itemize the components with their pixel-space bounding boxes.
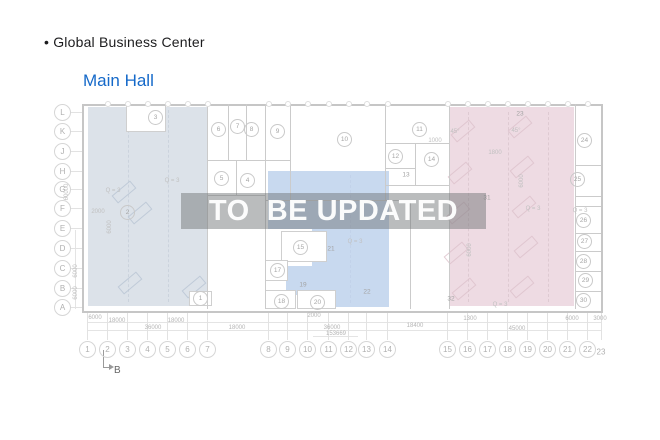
row-grid-line — [70, 171, 82, 172]
column-axis-bubble: 21 — [559, 341, 576, 358]
row-grid-line — [70, 208, 82, 209]
wall-segment — [575, 251, 601, 252]
plan-annotation: 1800 — [488, 150, 501, 156]
room-number-bubble: 30 — [576, 293, 591, 308]
row-axis-bubble: A — [54, 299, 71, 316]
column-axis-bubble: 2 — [99, 341, 116, 358]
row-axis-bubble: B — [54, 280, 71, 297]
wall-segment — [575, 291, 601, 292]
grid-bubble-small — [305, 101, 311, 107]
row-axis-bubble: H — [54, 163, 71, 180]
column-grid-line — [366, 311, 367, 340]
column-axis-bubble: 10 — [299, 341, 316, 358]
column-grid-line — [587, 311, 588, 340]
room-number-bubble: 27 — [577, 234, 592, 249]
column-axis-bubble: 19 — [519, 341, 536, 358]
plan-annotation: 6000 — [519, 174, 525, 187]
dimension-label: 18400 — [407, 323, 424, 329]
grid-bubble-small — [465, 101, 471, 107]
plan-annotation: Q = 3 — [573, 208, 588, 214]
column-axis-bubble: 14 — [379, 341, 396, 358]
room-number-bubble: 11 — [412, 122, 427, 137]
grid-bubble-small — [585, 101, 591, 107]
wall-segment — [575, 206, 601, 207]
plan-annotation: 2000 — [91, 209, 104, 215]
room-number: 13 — [402, 172, 409, 179]
grid-bubble-small — [445, 101, 451, 107]
grid-bubble-small — [346, 101, 352, 107]
grid-bubble-small — [266, 101, 272, 107]
wall-segment — [207, 160, 290, 161]
column-axis-bubble: 13 — [358, 341, 375, 358]
room-number-bubble: 2 — [120, 205, 135, 220]
grid-bubble-small — [165, 101, 171, 107]
column-axis-label: 23 — [597, 348, 606, 357]
room-number: 19 — [299, 282, 306, 289]
column-axis-bubble: 8 — [260, 341, 277, 358]
plan-annotation: Q = 3 — [493, 302, 508, 308]
grid-bubble-small — [525, 101, 531, 107]
plan-annotation: 6000 — [467, 243, 473, 256]
room-number: 21 — [327, 246, 334, 253]
room-number-bubble: 1 — [193, 291, 208, 306]
column-grid-line — [527, 311, 528, 340]
column-grid-line — [268, 311, 269, 340]
column-grid-line — [107, 311, 108, 340]
plan-annotation: Q = 3 — [106, 188, 121, 194]
column-grid-line — [187, 311, 188, 340]
column-axis-bubble: 11 — [320, 341, 337, 358]
grid-bubble-small — [505, 101, 511, 107]
plan-annotation: 1000 — [428, 138, 441, 144]
plan-annotation: 6000 — [73, 264, 79, 277]
column-axis-bubble: 15 — [439, 341, 456, 358]
column-grid-line — [207, 311, 208, 340]
row-grid-line — [70, 248, 82, 249]
dimension-label: 18000 — [109, 318, 126, 324]
watermark-band: TO BE UPDATED — [181, 193, 486, 229]
column-grid-line — [287, 311, 288, 340]
room-number-bubble: 8 — [244, 122, 259, 137]
room-number-bubble: 12 — [388, 149, 403, 164]
room-number-bubble: 29 — [578, 273, 593, 288]
room-number-bubble: 6 — [211, 122, 226, 137]
row-axis-bubble: F — [54, 200, 71, 217]
dimension-label: 36000 — [145, 325, 162, 331]
row-axis-bubble: C — [54, 260, 71, 277]
column-axis-bubble: 16 — [459, 341, 476, 358]
plan-annotation: 60000 — [64, 184, 70, 201]
room-number-bubble: 25 — [570, 172, 585, 187]
column-grid-line — [487, 311, 488, 340]
column-axis-bubble: 7 — [199, 341, 216, 358]
wall-segment — [415, 143, 416, 185]
room-number-bubble: 7 — [230, 119, 245, 134]
plan-annotation: 45° — [450, 129, 459, 135]
room-number-bubble: 18 — [274, 294, 289, 309]
column-axis-bubble: 22 — [579, 341, 596, 358]
row-axis-bubble: D — [54, 240, 71, 257]
room-number: 32 — [447, 296, 454, 303]
column-axis-bubble: 18 — [499, 341, 516, 358]
wall-segment — [575, 271, 601, 272]
row-grid-line — [70, 112, 82, 113]
room-number-bubble: 24 — [577, 133, 592, 148]
room-number-bubble: 5 — [214, 171, 229, 186]
room-number-bubble: 20 — [310, 295, 325, 310]
row-axis-bubble: J — [54, 143, 71, 160]
column-grid-line — [547, 311, 548, 340]
row-grid-line — [70, 307, 82, 308]
wall-segment — [575, 233, 601, 234]
grid-bubble-small — [125, 101, 131, 107]
wall-segment — [228, 104, 229, 160]
dimension-line — [87, 322, 601, 323]
grid-bubble-small — [105, 101, 111, 107]
dimension-label: 45000 — [509, 326, 526, 332]
plan-annotation: 6000 — [73, 286, 79, 299]
dimension-label: 3000 — [593, 316, 606, 322]
room-number-bubble: 3 — [148, 110, 163, 125]
room-number: 23 — [516, 111, 523, 118]
dimension-label: 2000 — [307, 313, 320, 319]
page: • Global Business Center Main Hall — [0, 0, 660, 440]
room-number-bubble: 9 — [270, 124, 285, 139]
grid-bubble-small — [145, 101, 151, 107]
grid-bubble-small — [205, 101, 211, 107]
column-axis-bubble: 1 — [79, 341, 96, 358]
row-axis-bubble: E — [54, 220, 71, 237]
plan-annotation: Q = 3 — [526, 206, 541, 212]
row-grid-line — [70, 151, 82, 152]
room-number-bubble: 4 — [240, 173, 255, 188]
wall-segment — [290, 104, 291, 200]
column-axis-bubble: 20 — [539, 341, 556, 358]
room-number-bubble: 14 — [424, 152, 439, 167]
row-axis-bubble: L — [54, 104, 71, 121]
column-grid-line — [127, 311, 128, 340]
grid-bubble-small — [565, 101, 571, 107]
plan-annotation: Q = 3 — [348, 239, 363, 245]
grid-bubble-small — [545, 101, 551, 107]
section-marker-label: B — [114, 365, 121, 376]
room-number-bubble: 28 — [576, 254, 591, 269]
wall-segment — [385, 185, 450, 186]
room-number-bubble: 26 — [576, 213, 591, 228]
plan-annotation: 45° — [511, 128, 520, 134]
column-axis-bubble: 4 — [139, 341, 156, 358]
column-axis-bubble: 6 — [179, 341, 196, 358]
column-grid-line — [167, 311, 168, 340]
column-grid-line — [348, 311, 349, 340]
grid-bubble-small — [485, 101, 491, 107]
column-grid-line — [387, 311, 388, 340]
room-number-bubble: 10 — [337, 132, 352, 147]
plan-annotation: Q = 3 — [165, 178, 180, 184]
plan-annotation: 6000 — [107, 220, 113, 233]
dimension-label: 153669 — [326, 331, 346, 337]
dimension-label: 18000 — [168, 318, 185, 324]
row-axis-bubble: K — [54, 123, 71, 140]
column-axis-bubble: 12 — [340, 341, 357, 358]
wall-segment — [575, 196, 601, 197]
wall-segment — [236, 160, 237, 195]
column-axis-bubble: 9 — [279, 341, 296, 358]
room-number: 22 — [363, 289, 370, 296]
room-number-bubble: 15 — [293, 240, 308, 255]
dimension-label: 6000 — [88, 315, 101, 321]
row-grid-line — [70, 131, 82, 132]
dimension-label: 1300 — [463, 316, 476, 322]
dimension-label: 6000 — [565, 316, 578, 322]
wall-segment — [575, 165, 601, 166]
watermark-text: TO BE UPDATED — [209, 195, 458, 228]
row-grid-line — [70, 189, 82, 190]
grid-bubble-small — [326, 101, 332, 107]
grid-bubble-small — [185, 101, 191, 107]
grid-bubble-small — [385, 101, 391, 107]
grid-bubble-small — [285, 101, 291, 107]
grid-bubble-small — [364, 101, 370, 107]
column-axis-bubble: 5 — [159, 341, 176, 358]
dimension-label: 18000 — [229, 325, 246, 331]
column-axis-bubble: 3 — [119, 341, 136, 358]
wall-segment — [385, 168, 415, 169]
room-number-bubble: 17 — [270, 263, 285, 278]
column-axis-bubble: 17 — [479, 341, 496, 358]
column-grid-line — [447, 311, 448, 340]
row-grid-line — [70, 228, 82, 229]
